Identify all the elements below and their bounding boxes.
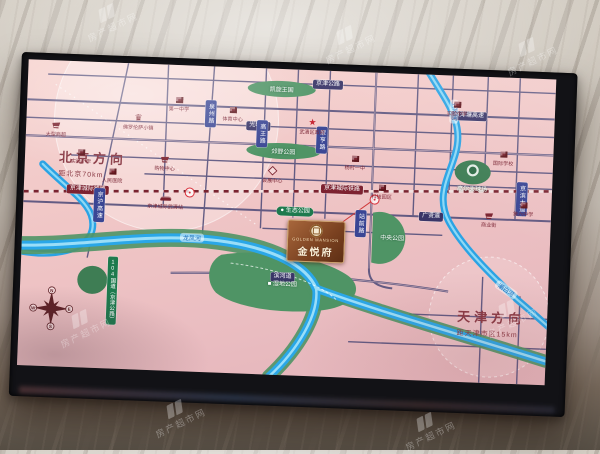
- watermark: 房产超市网: [317, 17, 379, 66]
- project-logo: GOLDEN MANSION 金悦府: [286, 219, 346, 263]
- poi-exhibition-center: 会展中心: [260, 166, 285, 185]
- watermark-logo-icon: [516, 38, 536, 57]
- watermark-logo-icon: [334, 26, 354, 45]
- photo-of-wall-display: { "photo": { "watermark": { "text": "房产超…: [0, 0, 600, 450]
- display-screen: 北京方向 距北京70km 天津方向 距天津市区15km 京津公路 京津塘高速 光…: [9, 52, 578, 417]
- watermark-logo-icon: [414, 413, 434, 432]
- poi-no1-middle-school: 第一中学: [167, 97, 192, 114]
- compass-e: E: [68, 307, 71, 312]
- poi-sports-center: 体育中心: [220, 107, 245, 124]
- poi-yangcun-school: 杨村一中: [343, 155, 368, 172]
- compass-rose: N E S W: [28, 285, 74, 331]
- poi-no6-middle-school: 第六中学: [511, 202, 536, 219]
- diamond-icon: [268, 166, 278, 176]
- park-label-kaixuan: 凯旋王国: [270, 84, 294, 94]
- park-dot-icon: ●: [280, 208, 284, 214]
- poi-experimental-school: 实验中学: [445, 101, 470, 118]
- building-icon: [378, 185, 385, 191]
- building-icon: [454, 102, 461, 108]
- poi-tech-park: 科技园区: [370, 184, 395, 201]
- cart-icon: [52, 122, 60, 128]
- train-icon: [159, 196, 171, 200]
- building-icon: [229, 107, 236, 113]
- watermark-logo-icon: [96, 4, 116, 23]
- poi-hospital: 人民医院: [100, 168, 125, 185]
- compass-s: S: [49, 324, 52, 329]
- park-label-shengtai: ● 生态公园: [276, 206, 314, 216]
- tianjin-direction-title: 天津方向: [457, 306, 526, 328]
- road-label-jingjin-highway: 京津公路: [313, 80, 343, 90]
- park-label-shidi: ■ 湿地公园: [267, 278, 297, 288]
- poi-wuqing-station: 京津城际武清站: [144, 196, 187, 212]
- river-label-longfeng: 龙凤河: [180, 233, 204, 243]
- project-name-cn: 金悦府: [297, 243, 334, 259]
- park-label-zhongyang: 中央公园: [380, 232, 404, 242]
- building-icon: [352, 156, 359, 162]
- poi-primary-school: 实验小学: [69, 149, 94, 166]
- watermark: 房产超市网: [79, 0, 141, 45]
- bezel-reflection: [19, 386, 555, 414]
- project-seal-icon: [310, 224, 323, 237]
- road-label-guangxian-rd: 广贤道: [419, 212, 443, 222]
- road-label-quanzhou-rd: 泉州路: [205, 100, 217, 127]
- crown-icon: ♛: [134, 113, 142, 121]
- star-icon: ★: [308, 118, 316, 126]
- poi-commercial-street: 商业街: [480, 213, 499, 230]
- building-icon: [176, 97, 183, 103]
- road-label-gaowang-rd: 高王路: [256, 120, 268, 147]
- cart-icon: [485, 213, 493, 219]
- direction-tianjin: 天津方向 距天津市区15km: [456, 306, 525, 341]
- road-label-zhanqian-rd: 站前路: [355, 210, 367, 237]
- building-icon: [109, 168, 116, 174]
- location-map: 北京方向 距北京70km 天津方向 距天津市区15km 京津公路 京津塘高速 光…: [17, 59, 556, 385]
- building-icon: [78, 149, 85, 155]
- cart-icon: [161, 156, 169, 162]
- park-label-jiaoye: 郊野公园: [271, 146, 295, 156]
- park-flag-icon: ■: [267, 281, 271, 287]
- poi-supermarket: 大型商超: [44, 122, 69, 139]
- building-icon: [520, 202, 527, 208]
- park-label-golf: 高尔夫球场: [457, 183, 487, 193]
- compass-n: N: [50, 288, 53, 293]
- poi-international-school: 国际学校: [491, 151, 516, 168]
- building-icon: [500, 151, 507, 157]
- watermark-logo-icon: [164, 400, 184, 419]
- road-label-jinghu-expwy: 京沪高速: [93, 188, 105, 222]
- poi-district-government: ★武清区政府: [297, 118, 328, 137]
- poi-florentia-village: ♛佛罗伦萨小镇: [120, 113, 157, 132]
- poi-shopping-center: 购物中心: [152, 156, 177, 173]
- railway-label-right: 京津城际铁路: [321, 184, 363, 195]
